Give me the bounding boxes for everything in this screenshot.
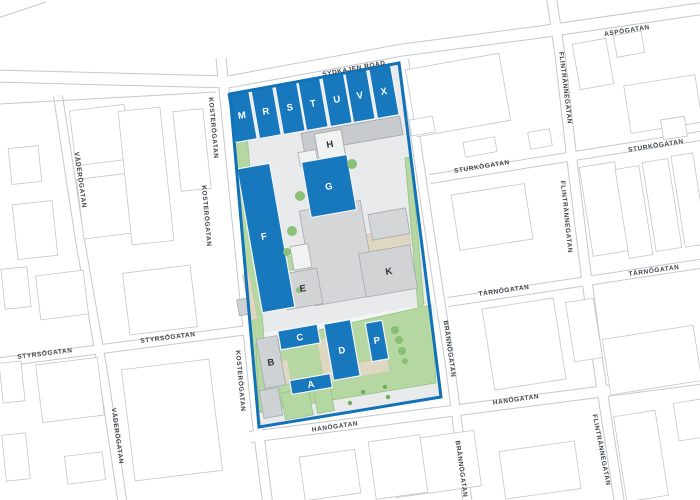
tree bbox=[402, 358, 408, 364]
tree bbox=[398, 347, 406, 355]
shrub-dot bbox=[383, 385, 387, 389]
tree bbox=[395, 336, 403, 344]
building-outline bbox=[36, 357, 105, 422]
building-outline bbox=[0, 361, 25, 403]
tree bbox=[283, 248, 291, 256]
building-outline bbox=[661, 116, 688, 140]
shrub-dot bbox=[348, 401, 352, 405]
tree bbox=[347, 159, 357, 169]
tree bbox=[391, 326, 399, 334]
building-outline bbox=[35, 270, 88, 320]
building-outline bbox=[8, 146, 42, 185]
building-outline bbox=[122, 265, 197, 335]
building-outline bbox=[368, 435, 428, 500]
building-outline bbox=[499, 441, 581, 499]
shrub-dot bbox=[361, 390, 365, 394]
light-building bbox=[290, 244, 312, 271]
shrub-dot bbox=[386, 395, 390, 399]
building-outline bbox=[299, 449, 361, 500]
building-outline bbox=[1, 267, 31, 309]
tree bbox=[287, 226, 297, 236]
building-outline bbox=[122, 359, 223, 481]
building-outline bbox=[451, 184, 533, 251]
building-outline bbox=[2, 433, 31, 481]
building-outline bbox=[12, 201, 58, 260]
building-outline bbox=[482, 298, 566, 390]
map-canvas: MRSTUVXGFCDPAHEKBSYDKAJEN ROADASPÖGATANF… bbox=[0, 0, 700, 500]
tree bbox=[295, 191, 305, 201]
site-plan-map: MRSTUVXGFCDPAHEKBSYDKAJEN ROADASPÖGATANF… bbox=[0, 0, 700, 500]
building-outline bbox=[64, 452, 105, 484]
building-outline bbox=[528, 129, 553, 150]
